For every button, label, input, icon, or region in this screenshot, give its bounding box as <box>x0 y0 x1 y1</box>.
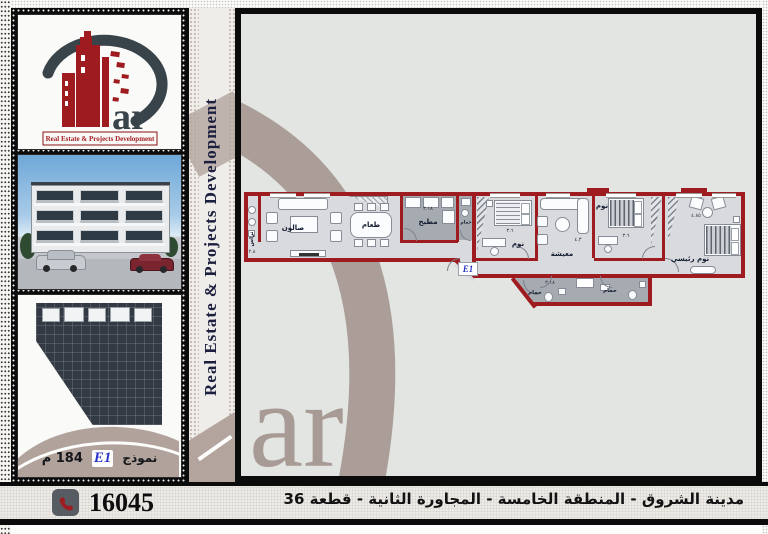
dotted-edge-top <box>11 0 768 8</box>
model-label: نموذج <box>122 451 157 465</box>
room-label-salon: صالون <box>282 224 304 232</box>
ledge <box>681 188 707 192</box>
phone-icon <box>52 489 79 516</box>
room-label-bedroom1: نوم <box>512 240 524 248</box>
bed <box>704 224 741 256</box>
roof-unit <box>88 308 106 322</box>
dining-chair <box>354 203 363 211</box>
room-label-terrace: تراس <box>249 232 255 247</box>
room-label-dining: طعام <box>362 221 380 229</box>
building-floor <box>34 188 165 206</box>
floor-plan: تراس ٢.٨ صالون <box>244 192 749 332</box>
bed <box>494 200 532 226</box>
room-label-kitchen: مطبخ <box>418 218 437 226</box>
kitchen-counter <box>405 197 421 208</box>
building-window <box>36 230 74 243</box>
main-panel-inner: ar <box>241 14 756 476</box>
living-chair <box>537 216 548 227</box>
unit-badge: E1 <box>458 262 478 276</box>
desk <box>598 236 618 245</box>
silver-car <box>36 255 86 270</box>
master-side-table <box>702 207 713 218</box>
dim-bedroom2: ٣.٦ <box>623 233 630 239</box>
vertical-brand-band: Real Estate & Projects Development <box>186 8 240 486</box>
wall-left <box>244 192 248 262</box>
model-info-row: نموذج E1 184 م <box>26 447 173 469</box>
dim-terrace: ٢.٨ <box>249 249 256 255</box>
bed <box>608 198 644 228</box>
desk <box>482 238 506 247</box>
desk-chair <box>490 247 499 256</box>
building-floor <box>34 208 165 226</box>
master-bench <box>690 266 716 274</box>
building-floor <box>34 228 165 246</box>
building-facade <box>31 185 170 253</box>
living-round-table <box>555 217 570 232</box>
window <box>712 193 736 198</box>
desk-chair <box>604 245 612 253</box>
wall-bath-small <box>456 196 459 242</box>
dining-chair <box>354 239 363 247</box>
salon-armchair <box>266 230 278 242</box>
salon-sofa <box>278 198 328 210</box>
salon-tv-unit <box>290 250 326 257</box>
band-title: Real Estate & Projects Development <box>189 8 233 486</box>
wall-bottom-left <box>244 258 460 262</box>
dining-chair <box>367 203 376 211</box>
window <box>606 193 636 198</box>
window <box>304 193 330 198</box>
phone-number: 16045 <box>89 489 154 516</box>
roof-unit <box>110 307 130 322</box>
dim-living: ٤.٣ <box>575 237 582 243</box>
window <box>490 193 520 198</box>
room-label-bath-small: حمام <box>460 221 471 226</box>
model-area: 184 م <box>42 451 83 466</box>
building-window <box>125 210 163 223</box>
phone-block: 16045 <box>52 489 154 516</box>
room-label-bath3: حمام <box>603 288 617 294</box>
watermark-text: ar <box>249 358 344 476</box>
window <box>270 193 296 198</box>
roof-unit <box>134 308 152 322</box>
washbasin <box>639 281 646 288</box>
main-panel: ar <box>235 8 762 482</box>
salon-armchair <box>266 212 278 224</box>
bath-sink <box>558 288 566 295</box>
nightstand <box>486 200 493 207</box>
logo-tagline: Real Estate & Projects Development <box>46 135 155 143</box>
bath-sink <box>461 198 471 206</box>
toilet <box>628 290 637 300</box>
kitchen-sink <box>441 197 454 208</box>
wall-bedroom2-right <box>662 196 665 258</box>
salon-armchair <box>330 212 342 224</box>
dotted-edge-left <box>0 0 11 534</box>
wall-bedroom1-right <box>535 196 538 258</box>
dim-master: ٤.٨٥ <box>691 213 701 219</box>
siteplan-panel: نموذج E1 184 م <box>17 294 182 478</box>
wall-right <box>741 192 745 278</box>
room-label-living: معيشة <box>551 250 574 258</box>
left-filmstrip-column: ar Real Estate & Projects Development <box>11 8 186 482</box>
terrace-plant <box>248 206 256 214</box>
building-photo-panel <box>17 154 182 290</box>
footer-border-bottom <box>0 519 768 525</box>
window <box>676 193 702 198</box>
wall-bath-right <box>648 276 652 306</box>
room-label-master: نوم رئيسي <box>671 255 709 263</box>
living-chair <box>537 234 548 245</box>
wall-living-right <box>592 196 595 258</box>
logo-panel: ar Real Estate & Projects Development <box>17 14 182 150</box>
salon-armchair <box>330 230 342 242</box>
brochure-page: ar Real Estate & Projects Development <box>0 0 768 534</box>
window <box>546 193 570 198</box>
building-window <box>125 230 163 243</box>
light-shaft <box>576 278 594 288</box>
dining-chair <box>367 239 376 247</box>
dim-kitchen: ٣.١٨ <box>423 206 433 212</box>
building-window <box>36 190 74 203</box>
wall-bath-bottom <box>532 302 652 306</box>
dining-chair <box>380 203 389 211</box>
terrace-plant <box>248 218 256 226</box>
living-sofa-side <box>577 198 589 234</box>
roof-unit <box>42 308 60 322</box>
model-code: E1 <box>92 450 114 467</box>
dining-chair <box>380 239 389 247</box>
building-window <box>80 190 118 203</box>
toilet <box>461 209 469 217</box>
roof-unit <box>64 307 84 322</box>
wall-kitchen-left <box>400 196 403 242</box>
red-car <box>130 258 174 271</box>
toilet <box>544 292 553 302</box>
dim-bedroom1: ٣.٦ <box>507 228 514 234</box>
dim-bath2: ٣.١٨ <box>545 280 555 286</box>
room-label-bedroom2: نوم <box>596 202 608 210</box>
kitchen-fridge <box>442 210 455 224</box>
ledge <box>587 188 609 192</box>
address-text: مدينة الشروق - المنطقة الخامسة - المجاور… <box>284 490 744 508</box>
building-window <box>80 210 118 223</box>
building-window <box>80 230 118 243</box>
room-label-bath2: حمام <box>528 290 542 296</box>
wall-terrace <box>258 196 261 242</box>
nightstand <box>733 216 740 223</box>
dar-logo: ar Real Estate & Projects Development <box>18 15 179 147</box>
building-render <box>18 155 181 289</box>
building-window <box>125 190 163 203</box>
dotted-edge-right <box>762 0 768 534</box>
building-window <box>36 210 74 223</box>
footer-bar: 16045 مدينة الشروق - المنطقة الخامسة - ا… <box>0 482 768 526</box>
